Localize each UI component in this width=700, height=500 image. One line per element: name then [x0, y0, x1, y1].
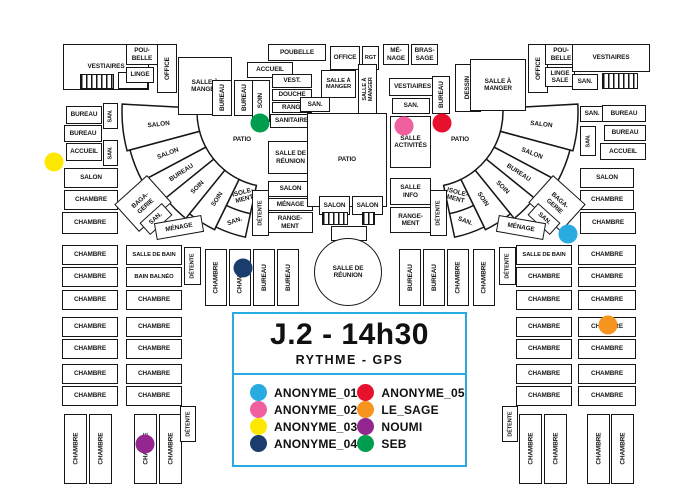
room-salle-manger: SALLE À MANGER — [321, 70, 356, 98]
legend-color-dot — [250, 435, 267, 452]
room-label: DÉTENTE — [257, 201, 263, 226]
room-label: CHAMBRE — [591, 392, 623, 399]
room-label: SALLE À MANGER — [361, 77, 373, 101]
legend-color-dot — [250, 401, 267, 418]
room-label: ACCUEIL — [609, 148, 637, 155]
room-bras-sage: BRAS- SAGE — [411, 44, 438, 65]
room-patio: PATIO — [307, 113, 387, 207]
room-vest: VEST. — [272, 74, 312, 88]
room-bureau: BUREAU — [602, 105, 646, 122]
person-dot-anonyme-01[interactable] — [559, 225, 578, 244]
room-chambre: CHAMBRE — [62, 290, 118, 310]
room-d-tente: DÉTENTE — [180, 406, 196, 442]
room-chambre: CHAMBRE — [126, 290, 182, 310]
room-label: CHAMBRE — [527, 433, 534, 465]
legend-person-name: NOUMI — [381, 420, 422, 434]
room-label: LINGE SALE — [550, 70, 569, 84]
room-label: CHAMBRE — [454, 262, 461, 294]
room-label: POU- BELLE — [551, 47, 571, 61]
room-label: BUREAU — [430, 264, 437, 291]
room-label: CHAMBRE — [619, 433, 626, 465]
room-label: OFFICE — [163, 57, 170, 80]
room-san: SAN. — [300, 97, 330, 112]
room-label: SALON — [80, 174, 102, 181]
room-san: SAN. — [572, 74, 598, 90]
room-label: POU- BELLE — [132, 47, 152, 61]
room-chambre: CHAMBRE — [578, 290, 636, 310]
room-label: CHAMBRE — [74, 296, 106, 303]
room-chambre: CHAMBRE — [126, 317, 182, 337]
person-dot-seb[interactable] — [251, 114, 270, 133]
room-label: CHAMBRE — [74, 370, 106, 377]
room-label: CHAMBRE — [138, 345, 170, 352]
room-label: SALLE DE RÉUNION — [275, 150, 306, 164]
room-accueil: ACCUEIL — [600, 143, 646, 160]
room-chambre: CHAMBRE — [516, 267, 572, 287]
stairs-hatch — [80, 74, 114, 89]
room-label: VESTIAIRES — [394, 83, 431, 90]
room-label: BUREAU — [218, 85, 225, 112]
room-poubelle: POUBELLE — [268, 44, 326, 61]
room-salle-manger: SALLE À MANGER — [358, 64, 377, 114]
room-label: VESTIAIRES — [593, 54, 630, 61]
room-chambre: CHAMBRE — [64, 190, 118, 210]
room-label: SALON — [280, 185, 302, 192]
room-san: SAN. — [103, 140, 118, 166]
room-chambre: CHAMBRE — [578, 267, 636, 287]
room-label: PATIO — [233, 136, 251, 143]
room-bureau: BUREAU — [399, 249, 421, 306]
room-chambre: CHAMBRE — [126, 364, 182, 384]
room-label: CHAMBRE — [528, 345, 560, 352]
room-label: CHAMBRE — [592, 219, 624, 226]
legend-entry-anonyme-01: ANONYME_01 — [250, 384, 357, 401]
room-office: OFFICE — [157, 44, 177, 93]
person-dot-anonyme-02[interactable] — [395, 117, 414, 136]
room-label: CHAMBRE — [138, 392, 170, 399]
stairs-hatch — [362, 212, 375, 225]
room-label: SOIN — [257, 93, 264, 108]
room-label: BUREAU — [611, 110, 638, 117]
room-label: BUREAU — [70, 130, 97, 137]
room-salle-info: SALLE INFO — [390, 178, 431, 205]
room-label: CHAMBRE — [591, 196, 623, 203]
room-bain-baln-o: BAIN BALNÉO — [126, 267, 182, 287]
room-label: RANGE- MENT — [398, 213, 423, 227]
room-label: SALLE À MANGER — [484, 78, 512, 92]
legend-person-name: ANONYME_04 — [274, 437, 357, 451]
room-label: CHAMBRE — [74, 251, 106, 258]
room-chambre: CHAMBRE — [126, 339, 182, 359]
legend-color-dot — [357, 435, 374, 452]
room-chambre: CHAMBRE — [62, 339, 118, 359]
room-label: CHAMBRE — [75, 196, 107, 203]
room-label: CHAMBRE — [591, 251, 623, 258]
legend-person-name: SEB — [381, 437, 406, 451]
room-bureau: BUREAU — [604, 125, 646, 141]
room-salle-de-r-union: SALLE DE RÉUNION — [314, 238, 382, 306]
person-dot-le-sage[interactable] — [599, 316, 618, 335]
room-salle-manger: SALLE À MANGER — [470, 59, 526, 111]
room-chambre: CHAMBRE — [473, 249, 495, 306]
room-chambre: CHAMBRE — [578, 386, 636, 406]
room-chambre: CHAMBRE — [62, 317, 118, 337]
room-chambre: CHAMBRE — [578, 364, 636, 384]
room-label: SANITAIRE — [275, 117, 308, 124]
room-chambre: CHAMBRE — [205, 249, 227, 306]
room-office: OFFICE — [330, 46, 360, 70]
room-label: OFFICE — [334, 54, 357, 61]
room-label: CHAMBRE — [591, 273, 623, 280]
room-chambre: CHAMBRE — [544, 414, 567, 484]
room-chambre: CHAMBRE — [516, 364, 572, 384]
room-vestiaires: VESTIAIRES — [389, 78, 436, 96]
person-dot-noumi[interactable] — [136, 435, 155, 454]
room-label: SALLE DE RÉUNION — [333, 265, 364, 279]
room-label: OFFICE — [534, 57, 541, 80]
room-label: SALON — [596, 174, 618, 181]
room-bureau: BUREAU — [277, 249, 299, 306]
room-san: SAN. — [103, 103, 118, 129]
room-salon: SALON — [580, 168, 634, 188]
room-bureau: BUREAU — [432, 76, 450, 114]
room-label: SAN. — [308, 101, 323, 108]
room-label: SAN. — [578, 78, 593, 85]
room-label: CHAMBRE — [138, 323, 170, 330]
room-salle-de-bain: SALLE DE BAIN — [516, 245, 572, 265]
room-label: PATIO — [451, 136, 469, 143]
room-label: BUREAU — [406, 264, 413, 291]
room-chambre: CHAMBRE — [611, 414, 634, 484]
legend-color-dot — [250, 418, 267, 435]
room-chambre: CHAMBRE — [62, 212, 118, 234]
room-label: DÉTENTE — [189, 254, 195, 279]
room-label: CHAMBRE — [72, 433, 79, 465]
room-label: RANGE- MENT — [278, 215, 303, 229]
room-label: SALLE DE BAIN — [522, 252, 565, 258]
legend-entry-anonyme-02: ANONYME_02 — [250, 401, 357, 418]
room-label: SALON — [324, 202, 346, 209]
person-dot-anonyme-05[interactable] — [433, 114, 452, 133]
room-label: CHAMBRE — [595, 433, 602, 465]
room-label: BUREAU — [612, 129, 639, 136]
room-label: CHAMBRE — [97, 433, 104, 465]
room-bureau: BUREAU — [66, 106, 102, 124]
room-chambre: CHAMBRE — [519, 414, 542, 484]
legend-entry-anonyme-04: ANONYME_04 — [250, 435, 357, 452]
room-label: PATIO — [338, 156, 356, 163]
room-label: CHAMBRE — [528, 273, 560, 280]
room-salon: SALON — [64, 168, 118, 188]
room-range-ment: RANGE- MENT — [390, 207, 431, 233]
room-range-ment: RANGE- MENT — [267, 212, 313, 233]
person-dot-anonyme-03[interactable] — [45, 153, 64, 172]
room-chambre: CHAMBRE — [580, 190, 634, 210]
room-label: MÉNAGE — [507, 222, 535, 234]
room-linge: LINGE — [126, 67, 154, 83]
room-san: SAN. — [392, 98, 430, 114]
room-label: SAN. — [107, 147, 113, 160]
room-bureau: BUREAU — [64, 125, 102, 142]
room-chambre: CHAMBRE — [516, 339, 572, 359]
room-label: CHAMBRE — [74, 219, 106, 226]
person-dot-anonyme-04[interactable] — [234, 259, 253, 278]
legend-entry-anonyme-05: ANONYME_05 — [357, 384, 464, 401]
room-label: SALLE À MANGER — [326, 78, 351, 91]
room-label: CHAMBRE — [138, 370, 170, 377]
legend-entry-anonyme-03: ANONYME_03 — [250, 418, 357, 435]
room-label: DÉTENTE — [507, 412, 513, 437]
session-subtitle: RYTHME - GPS — [234, 353, 465, 367]
room-label: CHAMBRE — [591, 296, 623, 303]
room-patio: PATIO — [222, 132, 262, 148]
legend-color-dot — [250, 384, 267, 401]
room-chambre: CHAMBRE — [578, 245, 636, 265]
room-label: DÉTENTE — [435, 201, 441, 226]
room-chambre: CHAMBRE — [62, 386, 118, 406]
legend-person-name: ANONYME_02 — [274, 403, 357, 417]
legend-person-name: LE_SAGE — [381, 403, 438, 417]
room-m-nage: MÉ- NAGE — [383, 44, 409, 65]
legend-entry-seb: SEB — [357, 435, 464, 452]
room-chambre: CHAMBRE — [126, 386, 182, 406]
room-label: SAN. — [585, 135, 591, 148]
room-d-tente: DÉTENTE — [184, 247, 201, 285]
legend-panel: J.2 - 14h30 RYTHME - GPS ANONYME_01ANONY… — [232, 312, 467, 467]
room-label: RGT — [365, 55, 376, 61]
room-chambre: CHAMBRE — [89, 414, 112, 484]
floor-plan: SALONSALONBUREAUSOINSOINISOLE-MENTSAN.SA… — [0, 0, 700, 500]
room-label: BUREAU — [240, 85, 247, 112]
room-chambre: CHAMBRE — [159, 414, 182, 484]
stairs-hatch — [322, 212, 348, 225]
room-bureau: BUREAU — [253, 249, 275, 306]
room-label: VESTIAIRES — [88, 63, 125, 70]
session-title: J.2 - 14h30 — [234, 319, 465, 351]
room-label: ACCUEIL — [70, 148, 98, 155]
room-label: CHAMBRE — [74, 345, 106, 352]
room-label: CHAMBRE — [591, 370, 623, 377]
room-chambre: CHAMBRE — [516, 290, 572, 310]
room-label: BUREAU — [260, 264, 267, 291]
room-label: VEST. — [283, 77, 300, 84]
room-label: CHAMBRE — [591, 345, 623, 352]
room-chambre: CHAMBRE — [447, 249, 469, 306]
room-label: BUREAU — [437, 82, 444, 109]
room-label: BAIN BALNÉO — [134, 274, 173, 280]
legend-person-name: ANONYME_05 — [381, 386, 464, 400]
room-label: CHAMBRE — [528, 296, 560, 303]
room-label: SALLE INFO — [400, 184, 420, 198]
legend-person-name: ANONYME_03 — [274, 420, 357, 434]
room-d-tente: DÉTENTE — [252, 190, 269, 236]
room-label: CHAMBRE — [528, 392, 560, 399]
room-label: POUBELLE — [280, 49, 314, 56]
room-bureau: BUREAU — [234, 80, 254, 116]
room-bureau: BUREAU — [212, 80, 232, 116]
room-accueil: ACCUEIL — [66, 143, 102, 161]
room-chambre: CHAMBRE — [229, 249, 251, 306]
legend-color-dot — [357, 384, 374, 401]
room-patio: PATIO — [440, 132, 480, 148]
room-label: ACCUEIL — [256, 66, 284, 73]
room-label: BRAS- SAGE — [415, 47, 435, 61]
room-label: CHAMBRE — [74, 273, 106, 280]
legend-color-dot — [357, 418, 374, 435]
legend-entry-le-sage: LE_SAGE — [357, 401, 464, 418]
room-label: CHAMBRE — [212, 262, 219, 294]
room-label: BUREAU — [284, 264, 291, 291]
room-label: DÉTENTE — [504, 254, 510, 279]
room-vestiaires: VESTIAIRES — [572, 44, 650, 72]
room-label: SALON — [357, 202, 379, 209]
room-label: DÉTENTE — [185, 412, 191, 437]
room-d-tente: DÉTENTE — [499, 247, 516, 285]
room-label: SAN. — [404, 102, 419, 109]
room-label: LINGE — [130, 71, 149, 78]
room-d-tente: DÉTENTE — [430, 190, 447, 236]
room-label: CHAMBRE — [74, 392, 106, 399]
room-pou-belle: POU- BELLE — [126, 44, 158, 65]
room-label: MÉNAGE — [165, 222, 193, 234]
room-chambre: CHAMBRE — [587, 414, 610, 484]
room-chambre: CHAMBRE — [64, 414, 87, 484]
room-label: BUREAU — [71, 111, 98, 118]
room-linge-sale: LINGE SALE — [545, 67, 575, 87]
room-label: CHAMBRE — [528, 370, 560, 377]
room-label: MÉNAGE — [277, 201, 304, 208]
room-label: SAN. — [585, 110, 600, 117]
room-chambre: CHAMBRE — [580, 212, 636, 234]
room-chambre: CHAMBRE — [62, 245, 118, 265]
room-san: SAN. — [580, 126, 596, 156]
room-chambre: CHAMBRE — [62, 267, 118, 287]
room-label: CHAMBRE — [138, 296, 170, 303]
room-label: SAN. — [107, 110, 113, 123]
room-chambre: CHAMBRE — [516, 317, 572, 337]
room-chambre: CHAMBRE — [578, 339, 636, 359]
room-chambre: CHAMBRE — [516, 386, 572, 406]
room-label: CHAMBRE — [74, 323, 106, 330]
room-label: CHAMBRE — [167, 433, 174, 465]
room-salle-de-bain: SALLE DE BAIN — [126, 245, 182, 265]
room-d-tente: DÉTENTE — [502, 406, 518, 442]
room-label: SALLE ACTIVITÉS — [394, 135, 426, 149]
room-label: CHAMBRE — [480, 262, 487, 294]
room-chambre: CHAMBRE — [62, 364, 118, 384]
legend-entries: ANONYME_01ANONYME_02ANONYME_03ANONYME_04… — [234, 375, 465, 446]
legend-person-name: ANONYME_01 — [274, 386, 357, 400]
room-label: MÉ- NAGE — [387, 47, 405, 61]
room-label: SALLE DE BAIN — [132, 252, 175, 258]
legend-color-dot — [357, 401, 374, 418]
room-label: CHAMBRE — [528, 323, 560, 330]
room-san: SAN. — [580, 106, 604, 122]
stairs-hatch — [602, 73, 638, 89]
legend-entry-noumi: NOUMI — [357, 418, 464, 435]
room-bureau: BUREAU — [423, 249, 445, 306]
room-label: CHAMBRE — [552, 433, 559, 465]
